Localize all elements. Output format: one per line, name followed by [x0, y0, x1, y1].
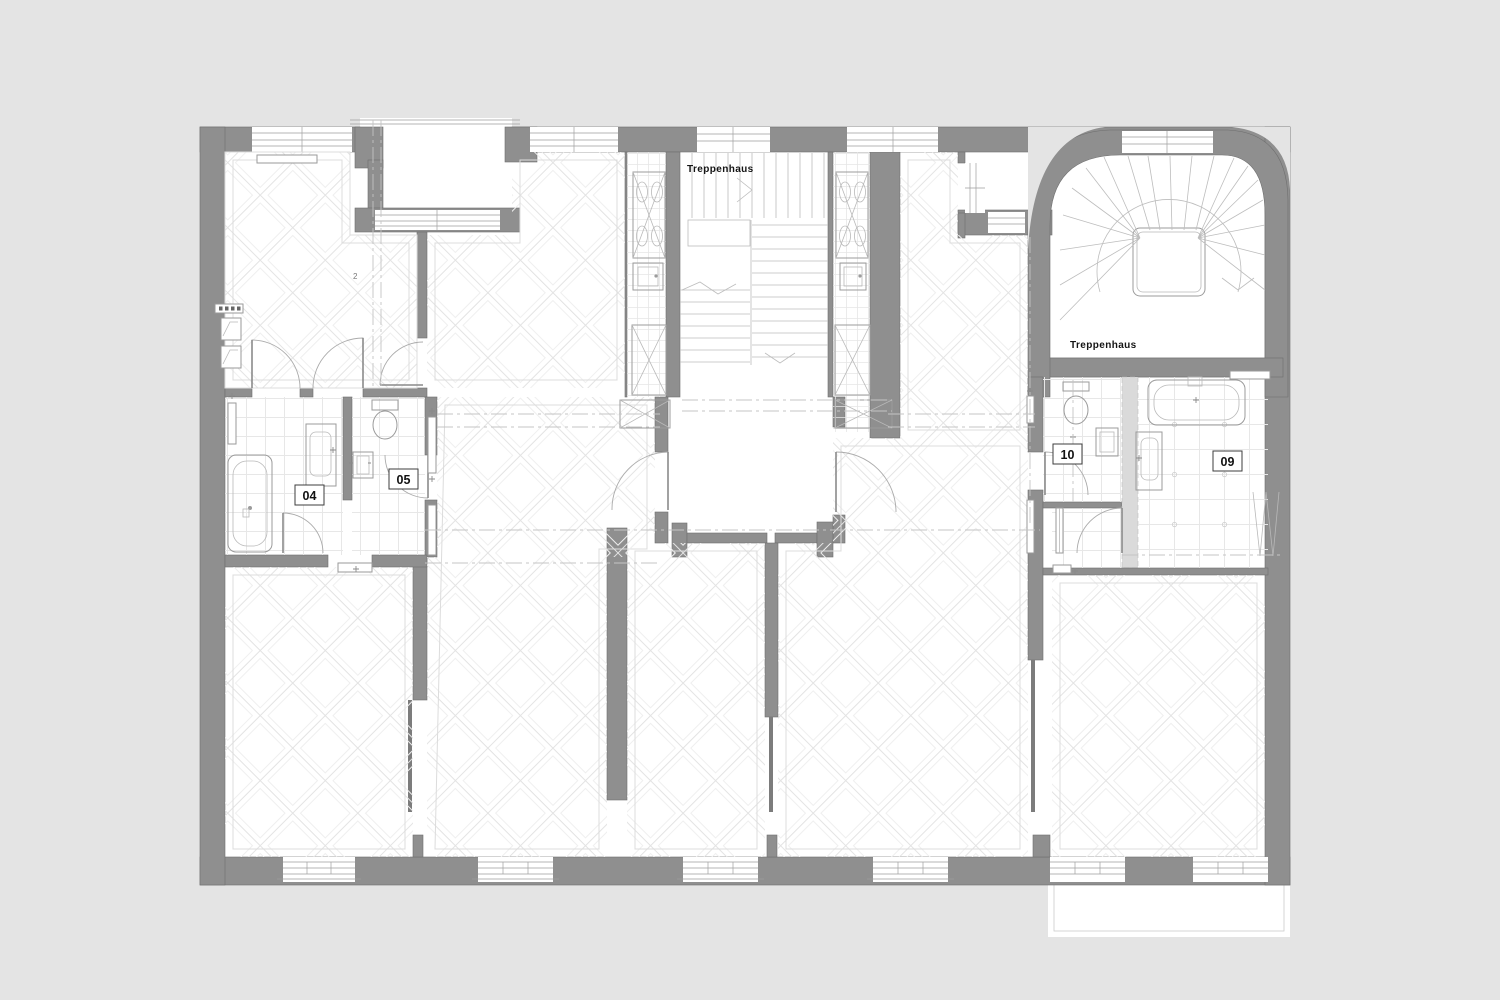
- bath-09-floor: [1138, 377, 1268, 568]
- room-label-09: 09: [1213, 451, 1242, 471]
- bottom-right-room-floor: [1052, 575, 1265, 857]
- room-label-04: 04: [295, 485, 324, 505]
- window: [252, 127, 352, 152]
- window: [1193, 857, 1268, 882]
- svg-text:04: 04: [303, 489, 317, 503]
- svg-text:09: 09: [1221, 455, 1235, 469]
- bottom-left-room-floor: [225, 567, 413, 857]
- radiator: [1027, 396, 1034, 423]
- bottom-center-room-floor: [627, 543, 765, 857]
- window: [472, 857, 559, 882]
- radiator: [257, 155, 317, 163]
- radiator: [1053, 565, 1071, 573]
- kitchen-strip-right-floor: [833, 152, 870, 432]
- window: [867, 857, 954, 882]
- window: [1122, 131, 1213, 153]
- stairwell-right-label: Treppenhaus: [1070, 340, 1137, 351]
- floor-plan: Treppenhaus Treppenhaus: [0, 0, 1500, 1000]
- threshold: [338, 563, 372, 572]
- wall-shaft: [221, 346, 241, 368]
- radiator: [1027, 500, 1034, 553]
- radiator: [228, 403, 236, 444]
- window: [677, 857, 764, 882]
- room-label-05: 05: [389, 469, 418, 489]
- window: [530, 127, 618, 152]
- window: [277, 857, 361, 882]
- wc-10-floor: [1043, 377, 1122, 502]
- sliding-panel: [1031, 660, 1035, 812]
- svg-text:10: 10: [1061, 448, 1075, 462]
- svg-text:05: 05: [397, 473, 411, 487]
- radiator: [428, 417, 436, 473]
- window: [988, 212, 1025, 233]
- room-label-10: 10: [1053, 444, 1082, 464]
- window: [847, 127, 938, 152]
- room-2-label: 2: [353, 272, 358, 281]
- window: [375, 210, 500, 230]
- sliding-panel: [769, 717, 773, 812]
- window: [965, 163, 985, 213]
- wall-shaft: [221, 318, 241, 340]
- window: [697, 127, 770, 152]
- floor-plan-page: Treppenhaus Treppenhaus: [0, 0, 1500, 1000]
- window: [1050, 857, 1125, 882]
- electrical-panel: [215, 304, 243, 313]
- radiator: [1230, 371, 1270, 379]
- stairwell-central-label: Treppenhaus: [687, 164, 754, 175]
